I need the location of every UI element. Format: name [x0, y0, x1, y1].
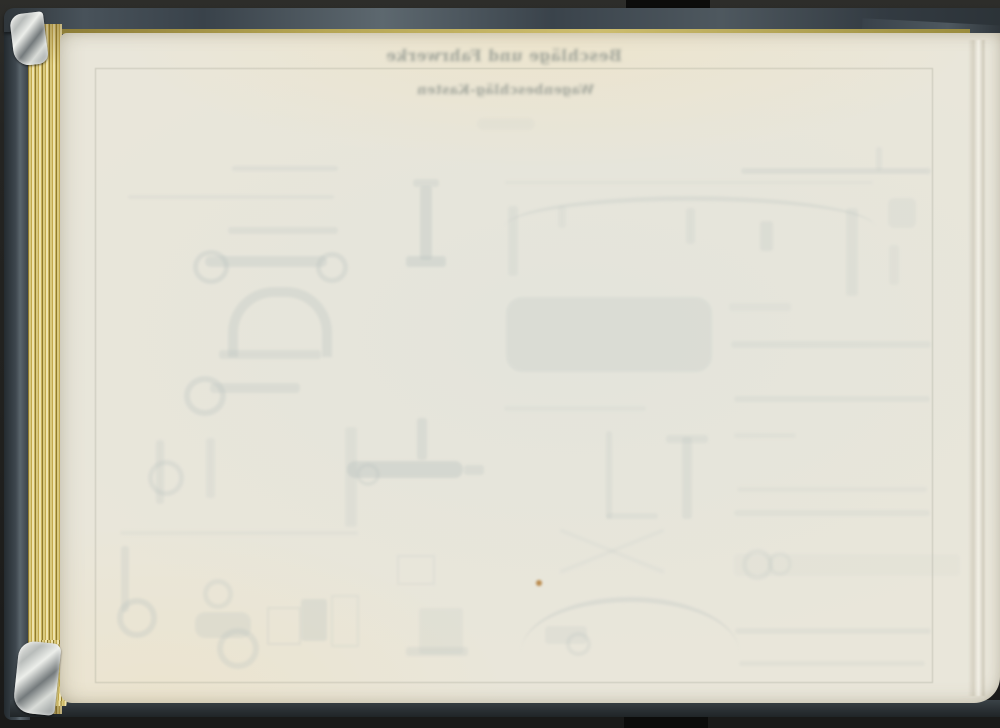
page-fore-edge-stack [28, 24, 62, 714]
page-right-crease [968, 40, 986, 696]
corner-protector-bottom-left [12, 640, 61, 716]
plate-border-showthrough [95, 68, 933, 683]
book-cover-left-edge [4, 10, 30, 720]
book-scan-stage: Beschläge und Fahrwerke Wagenbeschläg-Ka… [0, 0, 1000, 728]
showthrough-title-line1: Beschläge und Fahrwerke [422, 46, 622, 65]
showthrough-title-line2: Wagenbeschläg-Kasten [426, 83, 594, 98]
